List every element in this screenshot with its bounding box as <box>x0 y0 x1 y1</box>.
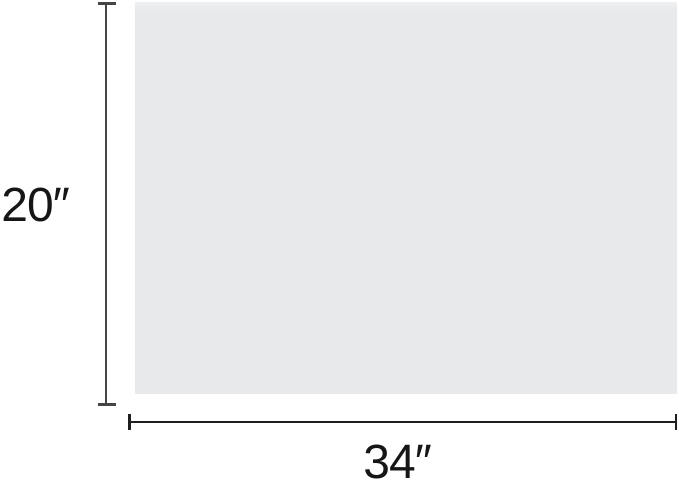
width-dimension-label: 34″ <box>347 439 447 483</box>
rectangle-panel <box>135 2 677 394</box>
vertical-dimension-line <box>105 3 107 404</box>
horizontal-dimension-line <box>128 421 677 423</box>
vertical-dimension-bottom-tick <box>98 403 116 406</box>
horizontal-dimension-right-tick <box>675 414 678 430</box>
vertical-dimension-top-tick <box>98 2 116 5</box>
dimension-diagram: 20″ 34″ <box>0 0 679 483</box>
height-dimension-label: 20″ <box>0 182 74 230</box>
